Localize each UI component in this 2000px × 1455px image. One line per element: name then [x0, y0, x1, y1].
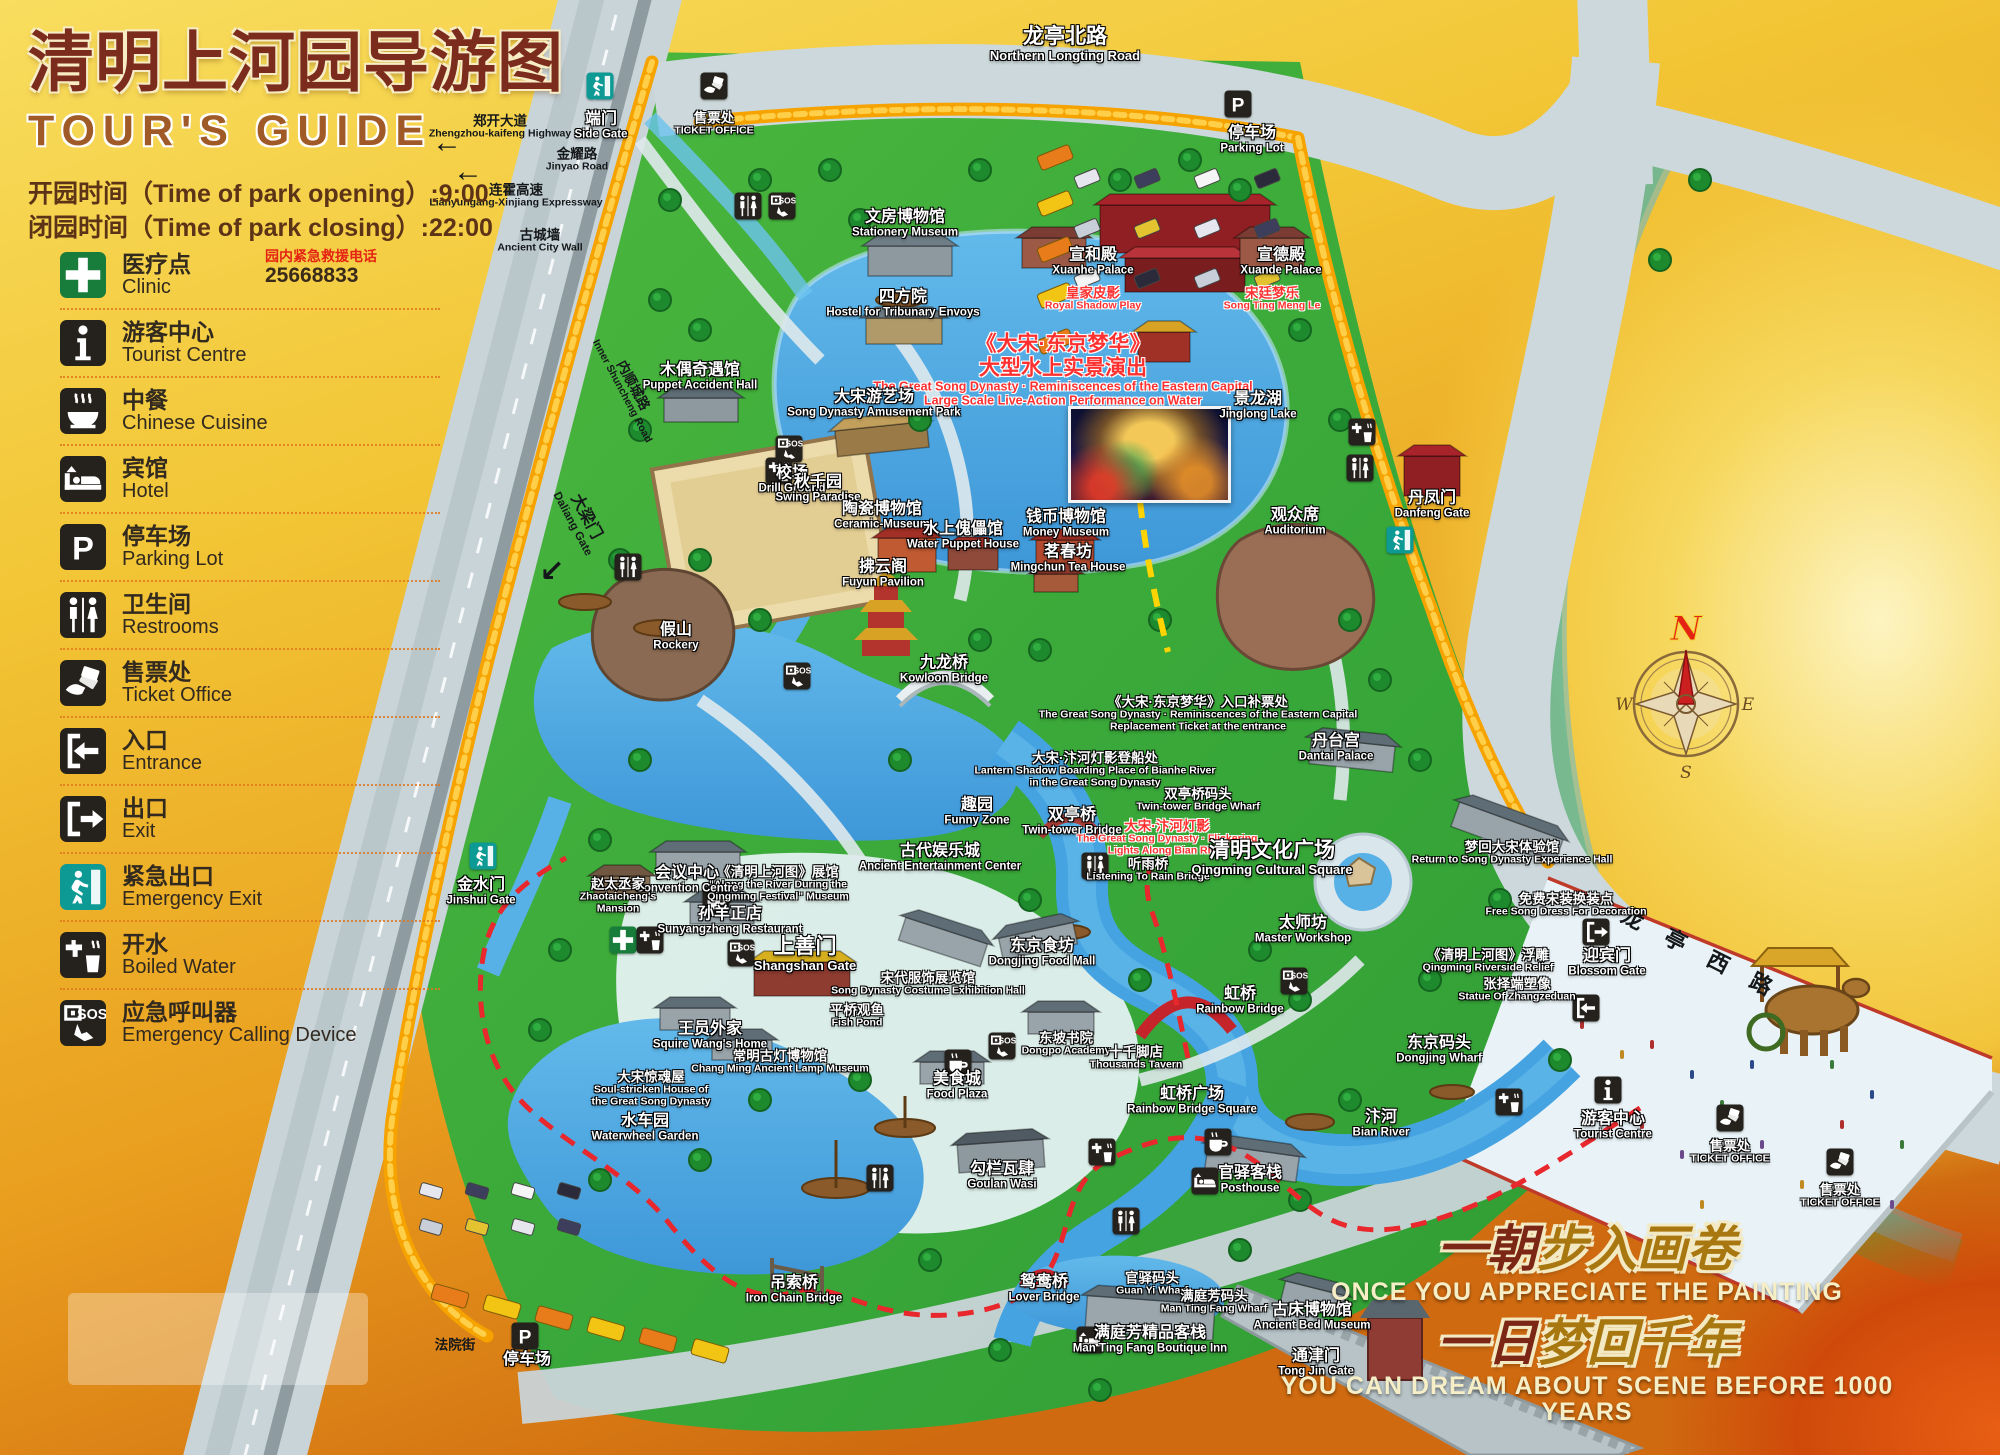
sos-icon: SOS	[60, 1000, 106, 1046]
clinic-icon	[60, 252, 106, 298]
slogan-line1-zh: 一朝步入画卷	[1280, 1222, 1894, 1275]
opening-hours: 开园时间（Time of park opening）:9:00	[28, 178, 628, 212]
legend-item-label: 开水Boiled Water	[122, 932, 236, 978]
performance-photo-inset	[1068, 406, 1231, 503]
translucent-panel	[68, 1293, 368, 1385]
restrooms-icon	[615, 554, 642, 581]
sos-icon: SOS	[989, 1033, 1016, 1060]
legend-item-label: 售票处Ticket Office	[122, 660, 232, 706]
slogan-line2-zh: 一日梦回千年	[1280, 1316, 1894, 1369]
info-icon	[60, 320, 106, 366]
legend-item-exit: 出口Exit	[60, 786, 440, 854]
restrooms-icon	[735, 193, 762, 220]
entrance-icon	[60, 728, 106, 774]
sos-icon: SOS	[769, 193, 796, 220]
clinic-icon	[610, 927, 637, 954]
exit-icon	[60, 796, 106, 842]
svg-text:P: P	[1232, 95, 1245, 116]
exit-icon	[1583, 919, 1610, 946]
ticket-icon	[1827, 1149, 1854, 1176]
legend-item-label: 应急呼叫器Emergency Calling Device	[122, 1000, 357, 1046]
parking-icon: P	[60, 524, 106, 570]
legend-item-parking-lot: P停车场Parking Lot	[60, 514, 440, 582]
legend-item-clinic: 医疗点Clinic园内紧急救援电话25668833	[60, 242, 440, 310]
restrooms-icon	[867, 1165, 894, 1192]
restrooms-icon	[1082, 853, 1109, 880]
legend-panel: 医疗点Clinic园内紧急救援电话25668833游客中心Tourist Cen…	[60, 242, 440, 1056]
coffee-icon	[703, 887, 730, 914]
svg-text:SOS: SOS	[738, 943, 755, 953]
emergency-phone: 园内紧急救援电话25668833	[265, 248, 377, 288]
coffee-icon	[945, 1050, 972, 1077]
slogan-line1-en: ONCE YOU APPRECIATE THE PAINTING	[1280, 1279, 1894, 1306]
legend-item-hotel: 宾馆Hotel	[60, 446, 440, 514]
svg-text:SOS: SOS	[786, 439, 803, 449]
emergency-icon	[1387, 527, 1414, 554]
parking-icon: P	[512, 1323, 539, 1350]
legend-item-entrance: 入口Entrance	[60, 718, 440, 786]
legend-item-label: 卫生间Restrooms	[122, 592, 219, 638]
hotel-icon	[60, 456, 106, 502]
legend-item-label: 宾馆Hotel	[122, 456, 169, 502]
emergency-icon	[470, 843, 497, 870]
legend-item-label: 出口Exit	[122, 796, 168, 842]
legend-item-label: 医疗点Clinic	[122, 252, 191, 298]
water-icon	[766, 458, 793, 485]
entrance-icon	[1573, 995, 1600, 1022]
compass-west: W	[1615, 695, 1634, 715]
closing-hours: 闭园时间（Time of park closing）:22:00	[28, 212, 628, 246]
svg-text:SOS: SOS	[77, 1007, 106, 1023]
slogan-line2-en: YOU CAN DREAM ABOUT SCENE BEFORE 1000 YE…	[1280, 1373, 1894, 1426]
legend-item-restrooms: 卫生间Restrooms	[60, 582, 440, 650]
restrooms-icon	[1347, 455, 1374, 482]
restrooms-icon	[1113, 1208, 1140, 1235]
ticket-icon	[701, 73, 728, 100]
compass-south: S	[1680, 763, 1692, 783]
page-title: 清明上河园导游图	[28, 28, 628, 97]
compass-rose: N W E S	[1614, 612, 1758, 788]
legend-item-label: 入口Entrance	[122, 728, 202, 774]
sos-icon: SOS	[728, 940, 755, 967]
svg-text:P: P	[72, 530, 94, 566]
hotel-icon	[1077, 1327, 1104, 1354]
compass-east: E	[1741, 695, 1755, 715]
legend-item-boiled-water: 开水Boiled Water	[60, 922, 440, 990]
map-header: 清明上河园导游图 TOUR'S GUIDE 开园时间（Time of park …	[28, 28, 628, 246]
svg-text:P: P	[519, 1327, 532, 1348]
legend-item-label: 紧急出口Emergency Exit	[122, 864, 262, 910]
park-hours: 开园时间（Time of park opening）:9:00 闭园时间（Tim…	[28, 178, 628, 246]
svg-text:SOS: SOS	[999, 1036, 1016, 1046]
svg-text:SOS: SOS	[1291, 971, 1308, 981]
water-icon	[637, 927, 664, 954]
water-icon	[1349, 419, 1376, 446]
info-icon	[1595, 1077, 1622, 1104]
legend-item-emergency-calling-device: SOS应急呼叫器Emergency Calling Device	[60, 990, 440, 1056]
restrooms-icon	[60, 592, 106, 638]
legend-item-label: 停车场Parking Lot	[122, 524, 223, 570]
slogan-block: 一朝步入画卷 ONCE YOU APPRECIATE THE PAINTING …	[1280, 1222, 1894, 1436]
emergency-icon	[60, 864, 106, 910]
coffee-icon	[1205, 1129, 1232, 1156]
legend-item-label: 游客中心Tourist Centre	[122, 320, 247, 366]
ticket-icon	[1717, 1105, 1744, 1132]
sos-icon: SOS	[1281, 968, 1308, 995]
tour-guide-map: 龙亭北路Northern Longting Road郑开大道Zhengzhou-…	[0, 0, 2000, 1455]
sos-icon: SOS	[784, 663, 811, 690]
compass-north: N	[1669, 612, 1703, 649]
parking-icon: P	[1225, 91, 1252, 118]
legend-item-label: 中餐Chinese Cuisine	[122, 388, 268, 434]
water-icon	[1496, 1089, 1523, 1116]
water-icon	[60, 932, 106, 978]
page-subtitle: TOUR'S GUIDE	[28, 107, 628, 156]
ticket-icon	[60, 660, 106, 706]
svg-text:SOS: SOS	[779, 196, 796, 206]
legend-item-tourist-centre: 游客中心Tourist Centre	[60, 310, 440, 378]
legend-item-chinese-cuisine: 中餐Chinese Cuisine	[60, 378, 440, 446]
water-icon	[1089, 1139, 1116, 1166]
hotel-icon	[1192, 1168, 1219, 1195]
svg-text:SOS: SOS	[794, 666, 811, 676]
legend-item-emergency-exit: 紧急出口Emergency Exit	[60, 854, 440, 922]
cuisine-icon	[60, 388, 106, 434]
legend-item-ticket-office: 售票处Ticket Office	[60, 650, 440, 718]
